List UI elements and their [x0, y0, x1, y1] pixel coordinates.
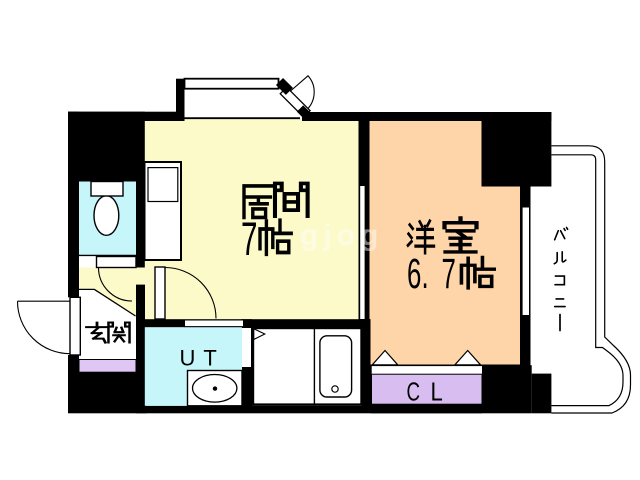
svg-text:7: 7: [442, 249, 456, 298]
svg-text:.: .: [422, 249, 429, 298]
svg-text:6: 6: [407, 249, 421, 298]
svg-text:L: L: [431, 378, 443, 407]
svg-text:UT: UT: [180, 346, 225, 371]
svg-text:C: C: [407, 377, 421, 407]
svg-text:7: 7: [241, 213, 257, 266]
svg-text:gjog: gjog: [300, 219, 383, 252]
